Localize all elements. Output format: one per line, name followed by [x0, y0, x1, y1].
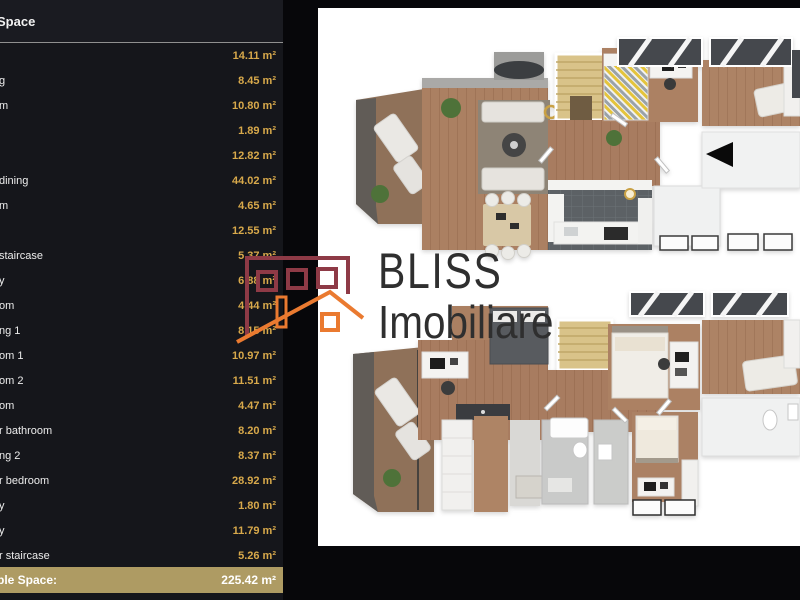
- total-area: 225.42 m²: [221, 573, 276, 587]
- room-upper-right: [702, 60, 800, 126]
- toilet: [763, 410, 777, 430]
- room-lower-right: [702, 320, 800, 456]
- pendant-light-icon: [625, 189, 635, 199]
- room-label: om 1: [0, 350, 23, 362]
- floor-plan-image: [318, 8, 800, 546]
- room-area: 11.79 m²: [233, 525, 276, 537]
- room-label: om 2: [0, 375, 23, 387]
- logo-house-outline: [237, 292, 363, 342]
- bedroom-1: [608, 324, 700, 410]
- logo-building-outline: [247, 258, 348, 338]
- plant-icon: [441, 98, 461, 118]
- space-panel-title: Space: [0, 14, 35, 29]
- staircase-upper: [556, 54, 608, 120]
- room-area: 28.92 m²: [232, 475, 276, 487]
- room-area: 1.89 m²: [238, 125, 276, 137]
- dressing-room: [442, 416, 546, 512]
- sink: [788, 404, 798, 420]
- plant-icon: [371, 185, 389, 203]
- room-area: 8.20 m²: [238, 425, 276, 437]
- window: [692, 236, 718, 250]
- room-label: r staircase: [0, 550, 50, 562]
- table-row: g 8.45 m²: [0, 68, 283, 93]
- desk: [670, 342, 698, 388]
- sofa: [482, 168, 544, 190]
- staircase-lower: [558, 320, 612, 370]
- room-area: 11.51 m²: [233, 375, 276, 387]
- window: [764, 234, 792, 250]
- table-row: om 2 11.51 m²: [0, 368, 283, 393]
- table-row: y 11.79 m²: [0, 518, 283, 543]
- plant-icon: [383, 469, 401, 487]
- table-row: r bathroom 8.20 m²: [0, 418, 283, 443]
- room-area: 5.26 m²: [238, 550, 276, 562]
- roof-skylights-lower: [630, 292, 788, 316]
- room-area: 12.82 m²: [232, 150, 276, 162]
- table-row: 12.82 m²: [0, 143, 283, 168]
- table-row: dining 44.02 m²: [0, 168, 283, 193]
- room-label: ng 2: [0, 450, 20, 462]
- table-row: y 1.80 m²: [0, 493, 283, 518]
- table-row: om 4.47 m²: [0, 393, 283, 418]
- sink: [564, 227, 578, 236]
- room-label: om: [0, 300, 14, 312]
- room-label: g: [0, 75, 5, 87]
- kitchen: [548, 180, 652, 250]
- bathroom-2: [594, 420, 628, 504]
- bathroom-1: [542, 418, 588, 504]
- room-area: 4.47 m²: [238, 400, 276, 412]
- room-label: m: [0, 200, 8, 212]
- table-row: 1.89 m²: [0, 118, 283, 143]
- tv-unit: [494, 61, 544, 79]
- total-row: ble Space: 225.42 m²: [0, 567, 283, 593]
- plant-icon: [606, 130, 622, 146]
- bathtub: [550, 418, 588, 438]
- chair: [658, 358, 670, 370]
- bliss-logo-icon: [220, 244, 380, 356]
- chair: [441, 381, 455, 395]
- room-label: y: [0, 275, 5, 287]
- table-row: r bedroom 28.92 m²: [0, 468, 283, 493]
- space-panel-header: Space: [0, 0, 283, 43]
- room-area: 1.80 m²: [238, 500, 276, 512]
- living-room: [422, 52, 557, 260]
- closet: [784, 320, 800, 368]
- table-row: 14.11 m²: [0, 43, 283, 68]
- floor-plan-upper: [356, 38, 800, 260]
- total-label: ble Space:: [0, 573, 57, 587]
- terrace: [356, 88, 431, 224]
- room-area: 12.55 m²: [232, 225, 276, 237]
- table-row: ng 2 8.37 m²: [0, 443, 283, 468]
- room-label: r bathroom: [0, 425, 52, 437]
- table-row: m 10.80 m²: [0, 93, 283, 118]
- toilet: [573, 442, 587, 458]
- window: [728, 234, 758, 250]
- room-area: 4.65 m²: [238, 200, 276, 212]
- room-label: y: [0, 500, 5, 512]
- stove: [604, 227, 628, 240]
- room-area: 14.11 m²: [233, 50, 276, 62]
- bedroom-2: [632, 412, 698, 515]
- hallway-upper: [548, 120, 660, 186]
- sink: [598, 444, 612, 460]
- room-area: 8.45 m²: [238, 75, 276, 87]
- room-area: 10.80 m²: [232, 100, 276, 112]
- room-area: 44.02 m²: [232, 175, 276, 187]
- room-label: staircase: [0, 250, 43, 262]
- table-row: r staircase 5.26 m²: [0, 543, 283, 568]
- room-area: 8.37 m²: [238, 450, 276, 462]
- chair: [664, 78, 676, 90]
- room-label: dining: [0, 175, 28, 187]
- table-row: 12.55 m²: [0, 218, 283, 243]
- wardrobe: [442, 420, 472, 510]
- floor-plan-render: [318, 8, 800, 546]
- sofa: [482, 102, 544, 122]
- dining-table: [483, 204, 531, 246]
- room-label: ng 1: [0, 325, 20, 337]
- room-label: r bedroom: [0, 475, 49, 487]
- room-label: m: [0, 100, 8, 112]
- room-label: om: [0, 400, 14, 412]
- floor-plan-lower: [353, 292, 800, 515]
- window: [660, 236, 688, 250]
- room-label: y: [0, 525, 5, 537]
- window: [665, 500, 695, 515]
- closet: [682, 460, 698, 506]
- table-row: m 4.65 m²: [0, 193, 283, 218]
- window: [633, 500, 661, 515]
